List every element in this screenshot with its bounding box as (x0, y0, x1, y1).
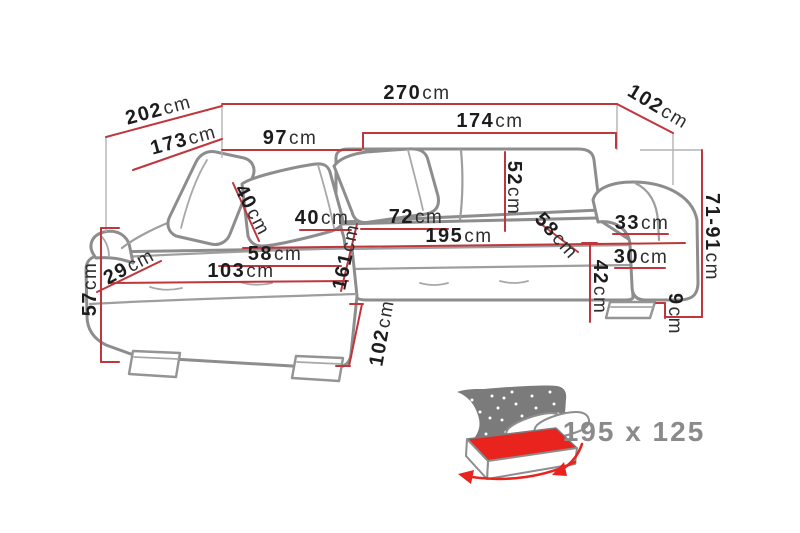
dimension-label-9: 9cm (664, 293, 686, 335)
dimension-label-195: 195cm (425, 225, 492, 247)
dimension-label-103: 103cm (207, 260, 274, 282)
dimension-label-30: 30cm (614, 246, 669, 268)
dimension-label-57: 57cm (79, 262, 101, 317)
dimension-label-270: 270cm (383, 82, 450, 104)
dimension-label-97: 97cm (263, 127, 318, 149)
foot-middle (292, 356, 343, 381)
dimension-label-33: 33cm (615, 212, 670, 234)
dimension-label-52: 52cm (503, 161, 525, 216)
diagram-canvas: 270cm 102cm 202cm 173cm 97cm 174cm 52cm … (0, 0, 800, 533)
dimension-label-71-91: 71-91cm (701, 193, 723, 281)
sofa-dimension-diagram: 270cm 102cm 202cm 173cm 97cm 174cm 52cm … (0, 0, 800, 533)
bed-arrow-bottom-head (458, 470, 474, 484)
dimension-label-40-seat: 40cm (295, 207, 350, 229)
foot-left (129, 351, 180, 377)
dimension-label-174: 174cm (456, 110, 523, 132)
dimension-label-102-bottom: 102cm (365, 298, 398, 368)
dimension-label-42: 42cm (589, 260, 611, 315)
foot-right (606, 302, 655, 318)
sleeping-area-size: 195 x 125 (563, 416, 706, 447)
